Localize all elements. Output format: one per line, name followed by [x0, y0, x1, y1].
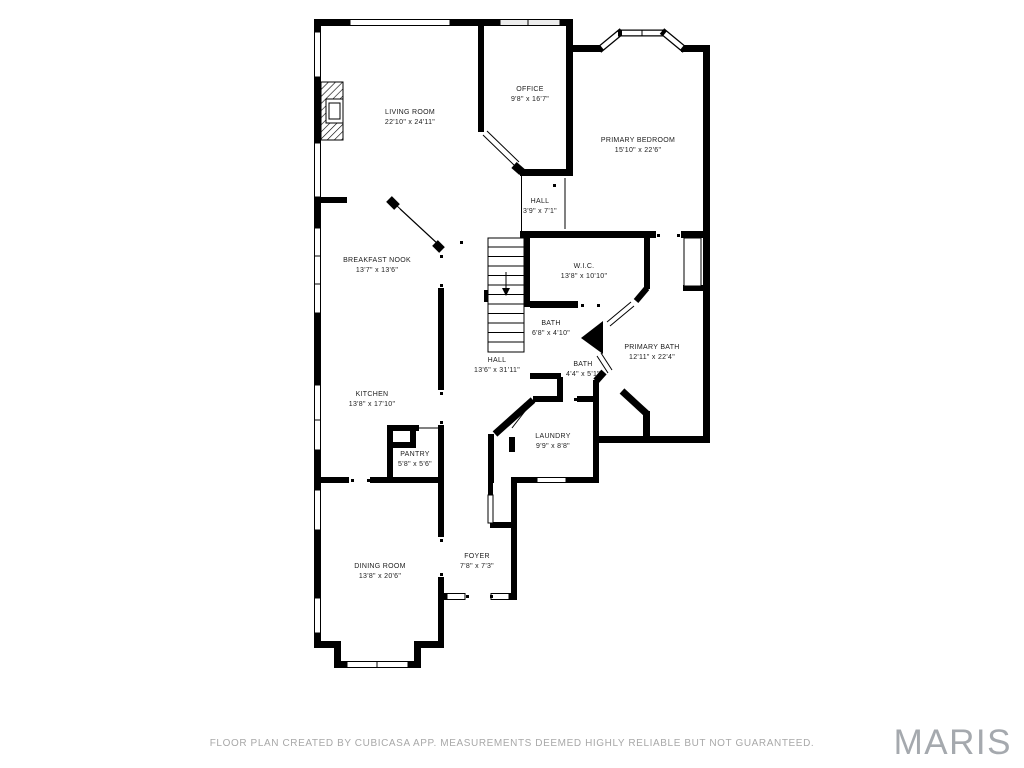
room-name: BATH: [566, 360, 600, 370]
room-dims: 5'8" x 5'6": [398, 460, 432, 470]
room-dims: 6'8" x 4'10": [532, 329, 570, 339]
room-name: DINING ROOM: [354, 562, 406, 572]
room-dims: 15'10" x 22'6": [601, 146, 675, 156]
room-dims: 9'9" x 8'8": [535, 442, 570, 452]
room-name: LIVING ROOM: [385, 108, 435, 118]
room-dims: 3'9" x 7'1": [523, 207, 557, 217]
room-name: OFFICE: [511, 85, 549, 95]
room-name: KITCHEN: [349, 390, 395, 400]
room-name: BATH: [532, 319, 570, 329]
room-name: PRIMARY BATH: [624, 343, 679, 353]
room-name: HALL: [474, 356, 520, 366]
room-name: HALL: [523, 197, 557, 207]
room-label-hall-large: HALL 13'6" x 31'11": [474, 356, 520, 376]
fireplace-icon: [321, 82, 343, 140]
room-name: W.I.C.: [561, 262, 607, 272]
room-label-foyer: FOYER 7'8" x 7'3": [460, 552, 494, 572]
room-label-pantry: PANTRY 5'8" x 5'6": [398, 450, 432, 470]
room-dims: 13'8" x 20'6": [354, 572, 406, 582]
floor-plan-page: LIVING ROOM 22'10" x 24'11" OFFICE 9'8" …: [0, 0, 1024, 768]
room-dims: 9'8" x 16'7": [511, 95, 549, 105]
maris-logo: MARIS: [894, 723, 1012, 763]
room-dims: 22'10" x 24'11": [385, 118, 435, 128]
floor-plan-drawing: [0, 0, 1024, 768]
room-name: FOYER: [460, 552, 494, 562]
room-label-kitchen: KITCHEN 13'8" x 17'10": [349, 390, 395, 410]
room-label-primary-bath: PRIMARY BATH 12'11" x 22'4": [624, 343, 679, 363]
room-name: PANTRY: [398, 450, 432, 460]
room-dims: 12'11" x 22'4": [624, 353, 679, 363]
disclaimer-text: FLOOR PLAN CREATED BY CUBICASA APP. MEAS…: [210, 738, 815, 749]
room-name: LAUNDRY: [535, 432, 570, 442]
room-dims: 13'8" x 17'10": [349, 400, 395, 410]
room-dims: 13'6" x 31'11": [474, 366, 520, 376]
room-name: PRIMARY BEDROOM: [601, 136, 675, 146]
room-label-hall-small: HALL 3'9" x 7'1": [523, 197, 557, 217]
door-wedge-icon: [581, 321, 603, 354]
stairs-icon: [488, 238, 524, 352]
room-dims: 4'4" x 5'1": [566, 370, 600, 380]
room-label-breakfast-nook: BREAKFAST NOOK 13'7" x 13'6": [343, 256, 411, 276]
room-dims: 13'8" x 10'10": [561, 272, 607, 282]
room-label-wic: W.I.C. 13'8" x 10'10": [561, 262, 607, 282]
room-label-office: OFFICE 9'8" x 16'7": [511, 85, 549, 105]
room-dims: 7'8" x 7'3": [460, 562, 494, 572]
room-dims: 13'7" x 13'6": [343, 266, 411, 276]
room-label-dining-room: DINING ROOM 13'8" x 20'6": [354, 562, 406, 582]
room-label-primary-bedroom: PRIMARY BEDROOM 15'10" x 22'6": [601, 136, 675, 156]
room-name: BREAKFAST NOOK: [343, 256, 411, 266]
room-label-bath-1: BATH 6'8" x 4'10": [532, 319, 570, 339]
room-label-bath-2: BATH 4'4" x 5'1": [566, 360, 600, 380]
room-label-laundry: LAUNDRY 9'9" x 8'8": [535, 432, 570, 452]
room-label-living-room: LIVING ROOM 22'10" x 24'11": [385, 108, 435, 128]
